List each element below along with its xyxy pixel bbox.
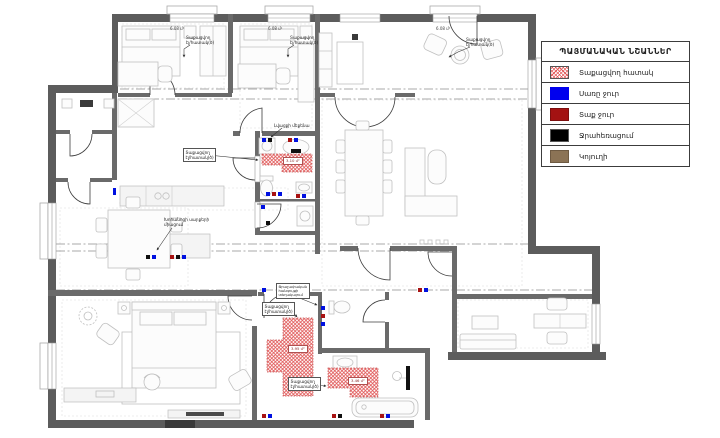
annotation-water-meter: Ջրաչափական հանգույցի տեղակայում xyxy=(276,283,310,299)
annotation-heated-floor-shower: Տաքացվող էլ/հատակ(ծ) xyxy=(262,302,295,316)
annotation-washing-machine: Լվացքի մեքենա xyxy=(274,123,310,128)
hot-water-swatch xyxy=(550,108,569,121)
legend-item-drainage: Ջրահեռացում xyxy=(542,125,689,146)
master-bedroom-furniture xyxy=(64,302,253,418)
area-label-bedroom2: 6.08 մ² xyxy=(268,26,282,31)
cold-water-swatch xyxy=(550,87,569,100)
floor-plan-page: 6.08 մ² Տաքացվող էլ/հատակ(ծ) 6.08 մ² Տաք… xyxy=(0,0,720,438)
study-room-furniture xyxy=(460,298,586,349)
hall-closet xyxy=(118,99,154,127)
legend-item-sewer: Կոյուղի xyxy=(542,146,689,166)
annotation-heated-floor-bedroom2: Տաքացվող էլ/հատակ(ծ) xyxy=(290,35,318,46)
annotation-heated-floor-bathroom: Տաքացվող էլ/հատակ(ծ) xyxy=(288,377,321,391)
legend-item-cold-water: Սառը ջուր xyxy=(542,83,689,104)
area-label-living: 6.08 մ² xyxy=(436,26,450,31)
legend-item-heated-floor: Տաքացվող հատակ xyxy=(542,62,689,83)
heated-zone-label-bath2: 3.95 մ² xyxy=(288,345,308,353)
dining-table xyxy=(96,197,182,280)
sewer-swatch xyxy=(550,150,569,163)
legend-title: ՊԱՅՄԱՆԱԿԱՆ ՆՇԱՆՆԵՐ xyxy=(542,42,689,62)
legend-item-hot-water: Տաք ջուր xyxy=(542,104,689,125)
annotation-kitchen-connections: Խոհանոցի սարքերի միացում xyxy=(164,217,209,228)
heated-floor-swatch xyxy=(550,66,569,79)
living-dining-furniture xyxy=(336,121,457,244)
area-label-bedroom1: 6.08 մ² xyxy=(170,26,184,31)
annotation-heated-floor-living: Տաքացվող էլ/հատակ(ծ) xyxy=(466,37,494,48)
bathroom-bottom xyxy=(328,356,418,418)
annotation-heated-floor-bath: Տաքացվող էլ/հատակ(ծ) xyxy=(183,148,216,162)
bathroom-middle xyxy=(259,138,313,226)
wc-room xyxy=(321,288,428,326)
heated-zone-label-bath1: 3.10 մ² xyxy=(283,157,303,165)
heated-zone-label-bath3: 3.46 մ² xyxy=(348,377,368,385)
drainage-swatch xyxy=(550,129,569,142)
legend: ՊԱՅՄԱՆԱԿԱՆ ՆՇԱՆՆԵՐ Տաքացվող հատակ Սառը ջ… xyxy=(541,41,690,167)
annotation-heated-floor-bedroom1: Տաքացվող էլ/հատակ(ծ) xyxy=(186,35,214,46)
